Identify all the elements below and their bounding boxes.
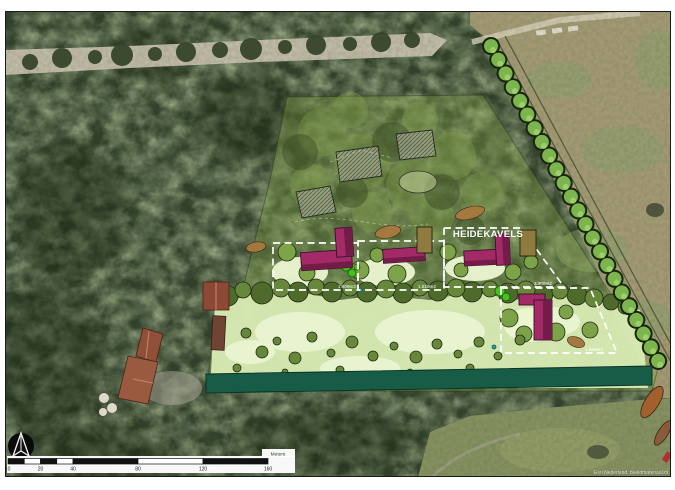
plot-area-label: 1.986m2 [585, 347, 603, 352]
scale-unit-label: Meters [271, 452, 286, 458]
sketch-clearing [399, 171, 437, 193]
scale-tick: 0 [8, 467, 11, 473]
scale-tick: 20 [38, 467, 44, 473]
map-canvas: 1.609m2 1.819m2 [0, 11, 675, 490]
scale-tick: 40 [70, 467, 76, 473]
plot-area-label: 1.609m2 [338, 284, 356, 289]
scale-segments [8, 459, 268, 465]
plot-area-label: 1.819m2 [418, 284, 436, 289]
area-title: HEIDEKAVELS [453, 229, 523, 240]
north-arrow-icon [8, 433, 34, 459]
site-plan-map: 1.609m2 1.819m2 [0, 0, 675, 490]
shed [417, 227, 432, 253]
plot-area-label: 2.306m2 [534, 281, 552, 286]
attribution-text: Esri Nederland, beeldmateriaal.nl [594, 470, 668, 476]
scale-tick: 80 [135, 467, 141, 473]
outbuilding-south [211, 316, 226, 351]
site-plan-page: 1.609m2 1.819m2 [0, 0, 675, 490]
scale-tick: 120 [199, 467, 208, 473]
scale-tick: 160 [264, 467, 273, 473]
